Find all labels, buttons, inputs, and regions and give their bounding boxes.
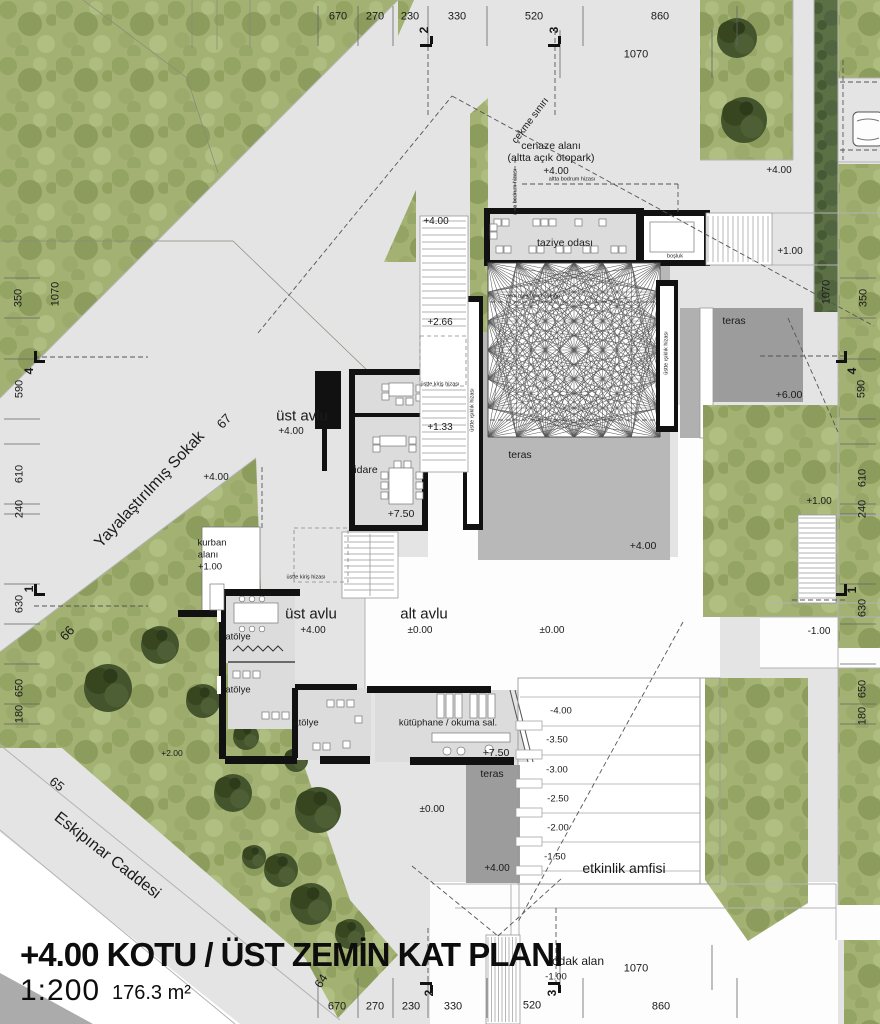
- plan-drawing: [0, 0, 880, 1024]
- floor-plan-canvas: 6702702303305208601070670270230330520860…: [0, 0, 880, 1024]
- grass-right-low: [705, 678, 808, 941]
- teras-bottom: [466, 765, 520, 883]
- plan-scale: 1:200: [20, 974, 100, 1008]
- car: [853, 112, 880, 146]
- page-title: +4.00 KOTU / ÜST ZEMİN KAT PLANI: [20, 936, 562, 974]
- plan-area: 176.3 m²: [112, 982, 191, 1005]
